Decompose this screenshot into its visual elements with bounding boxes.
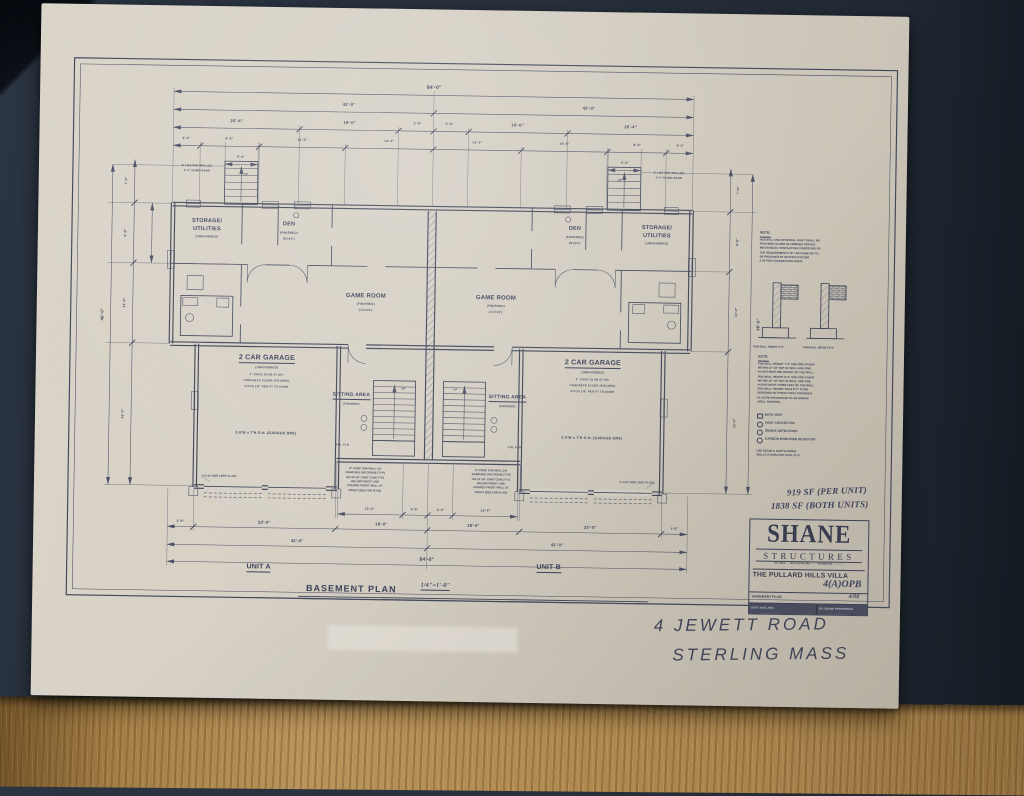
dim-label: 5'-8": [414, 122, 422, 125]
unit-b-label: UNIT B: [536, 564, 561, 573]
sf-both-units-handwriting: 1838 SF (BOTH UNITS): [771, 500, 869, 511]
dim-label: 4'-0": [437, 509, 445, 512]
dim-label: 5'-8": [446, 123, 454, 126]
room-label-storage-right-3: (UNFINISHED): [645, 242, 668, 245]
dim-label: 23'-0": [121, 409, 124, 419]
unit-left-linework: [164, 160, 433, 500]
job-number-handwriting: 4(A)OPB: [823, 579, 862, 591]
garage-note-left-1: 4" CONC SLAB AT GR.: [250, 373, 284, 376]
fdn-detail2-label: FDN WALL HEIGHT 8'-0": [803, 346, 834, 351]
dim-label: 13'-0": [735, 307, 738, 317]
date-cell: DATE: NOV, 2004: [749, 603, 817, 614]
dim-label: 13'-0": [365, 508, 375, 511]
room-label-gameroom-left: GAME ROOM: [346, 293, 386, 300]
plan-title: BASEMENT PLAN: [306, 584, 397, 594]
dim-label: 13'-0": [481, 510, 491, 513]
note1-title: NOTE:: [760, 231, 771, 238]
room-label-gameroom-right-3: (14'x12'): [489, 311, 503, 314]
dim-label: 20'-4": [230, 119, 243, 123]
up-label-right: UP: [618, 179, 622, 182]
unit-a-label: UNIT A: [246, 563, 270, 572]
brand-address: P.O. BOX ·· · BOYLSTON, MA ····· · PHONE…: [750, 561, 868, 566]
dim-label: 14'-2": [472, 141, 482, 144]
garage-note-left-2: CONCRETE FLOOR (PITCHED): [244, 379, 290, 383]
dim-label: 14'-0": [559, 143, 569, 146]
room-label-storage-left: STORAGE/: [192, 219, 222, 225]
garage-note-left-3: PITCH 1/8" PER FT TO DOOR: [245, 385, 289, 388]
legend-item-co-detector: CARBON MONOXIDE DETECTOR: [757, 437, 823, 445]
note2-title: NOTE:: [758, 355, 769, 362]
up-label-stair-right: UP: [453, 388, 457, 391]
fin-flr-left: FIN. FLR: [336, 444, 349, 447]
dim-label: 42'-0": [583, 107, 596, 111]
note2-text: FDN WALL HEIGHT 7'-0" USE ONE #4 BARWITH…: [757, 362, 860, 405]
dim-label: 42'-0": [551, 543, 564, 547]
dim-label: 16'-0": [511, 124, 524, 128]
room-label-garage-left-2: (UNFINISHED): [255, 366, 278, 369]
dim-label: 23'-0": [733, 418, 736, 428]
dim-label: 5'-4": [621, 162, 629, 165]
room-label-gameroom-left-2: (FINISHED): [357, 303, 375, 306]
dim-label: 1'-6": [670, 528, 678, 531]
brand-name: SHANE: [750, 519, 868, 550]
note1-text: NATURAL AND ARTIFICIAL LIGHT SHALL BEPRO…: [760, 238, 862, 265]
pier-note-left-1: 8' LNG PAD WALL(S): [182, 165, 212, 168]
room-label-den-left-2: (FINISHED): [280, 231, 298, 234]
wood-table-edge: [0, 696, 1024, 795]
dim-label: 9'-6": [225, 138, 233, 141]
dim-label: 9'-8": [736, 238, 739, 246]
dim-label: 22'-0": [584, 526, 597, 530]
garage-note-right-2: CONCRETE FLOOR (PITCHED): [570, 384, 616, 388]
room-label-garage-left: 2 CAR GARAGE: [239, 354, 295, 363]
hdr-note-left: 2-2x10 HDR (SEE PLAN): [201, 475, 236, 478]
dim-label: 4'-4": [182, 137, 190, 140]
room-label-storage-left-2: UTILITIES: [193, 227, 221, 233]
up-label-stair-left: UP: [401, 388, 405, 391]
dim-label: 18'-0": [375, 522, 388, 526]
titleblock-footer-row: DATE: NOV, 2004 BY: SHANE PROPERTIES: [749, 602, 867, 615]
dim-label: 5'-4": [237, 156, 245, 159]
dim-label: 9'-8": [124, 229, 127, 237]
dim-label: 84'-0": [427, 86, 442, 91]
co-detector-circle-icon: [757, 437, 763, 443]
room-label-garage-right-2: (UNFINISHED): [581, 371, 604, 374]
dim-label: 22'-0": [258, 521, 271, 525]
garage-note-right-1: 4" CONC SLAB AT GR.: [576, 378, 610, 381]
dim-label: 1'-6": [176, 520, 184, 523]
title-block: SHANE STRUCTURES P.O. BOX ·· · BOYLSTON,…: [748, 518, 869, 616]
dim-label: 42'-0": [291, 539, 304, 543]
room-label-den-right-3: (9'x10'): [569, 242, 581, 245]
smoke-detector-circle-icon: [757, 429, 763, 435]
dim-label: 14'-2": [384, 140, 394, 143]
room-label-storage-right-2: UTILITIES: [643, 234, 671, 240]
bath-vent-square-icon: [757, 413, 763, 419]
dim-label: 7'-0": [737, 186, 740, 194]
dim-label: 13'-0": [123, 298, 126, 308]
legend-label: CARBON MONOXIDE DETECTOR: [765, 437, 823, 442]
room-label-gameroom-right: GAME ROOM: [476, 295, 516, 302]
handwritten-city-state: STERLING MASS: [672, 644, 849, 666]
fdn-detail1-label: FDN WALL HEIGHT 7'-0": [753, 345, 784, 350]
fdn-wall-detail-drawings: [758, 283, 846, 339]
room-label-gameroom-left-3: (14'x12'): [359, 309, 373, 312]
room-label-sitting-left-2: (FINISHED): [343, 403, 360, 406]
room-label-sitting-right-2: (FINISHED): [499, 405, 516, 408]
room-label-den-right-2: (FINISHED): [566, 236, 584, 239]
fdn-note-right: 8" CONC FDN WALL (4')DOWN BELOW GRADE (T…: [471, 468, 510, 495]
sheet-number-handwriting: 4/08: [849, 594, 860, 600]
legend-label: BATH VENT: [765, 413, 783, 417]
legend-item-heat-convector: HEAT CONVECTOR: [757, 421, 795, 428]
room-label-den-left: DEN: [283, 222, 295, 228]
dim-label: 16'-0": [343, 121, 356, 125]
pier-note-right-2: 4'-0" DOWN BAND: [655, 178, 682, 181]
dim-label: 20'-4": [624, 125, 637, 129]
room-label-den-right: DEN: [569, 227, 581, 233]
desk-right-shade: [894, 0, 1024, 710]
dim-label: 14'-0": [297, 139, 307, 142]
room-label-storage-left-3: (UNFINISHED): [195, 235, 218, 238]
blueprint-paper: STORAGE/ UTILITIES (UNFINISHED) DEN (FIN…: [31, 3, 910, 709]
erased-smudge: [327, 625, 517, 653]
plan-scale: 1/4"=1'-0": [421, 583, 451, 591]
dim-label: 42'-0": [343, 103, 356, 107]
dim-label: 9'-6": [633, 144, 641, 147]
dim-label: 46'-0": [100, 308, 104, 321]
room-label-den-left-3: (9'x10'): [283, 238, 295, 241]
legend-label: HEAT CONVECTOR: [765, 421, 795, 425]
dim-label: 18'-0": [467, 524, 480, 528]
room-label-gameroom-right-2: (FINISHED): [487, 305, 505, 308]
legend-item-smoke-detector: SMOKE DETECTORS: [757, 429, 797, 436]
handwritten-street-address: 4 JEWETT ROAD: [654, 614, 829, 636]
dim-label: 46'-0": [756, 318, 760, 331]
legend-footer: USE DOUBLE JOISTS UNDERWALLS IF GREATER …: [756, 449, 800, 458]
up-label-left: UP: [244, 173, 248, 176]
pier-note-left-2: 4'-0" DOWN BAND: [184, 170, 211, 173]
garage-note-right-3: PITCH 1/8" PER FT TO DOOR: [570, 390, 614, 393]
room-label-garage-right: 2 CAR GARAGE: [565, 359, 621, 368]
dim-label: 4'-4": [676, 145, 684, 148]
sheet-name: BASEMENT PLAN: [752, 594, 781, 598]
fin-flr-right: FIN. FLR: [508, 446, 521, 449]
dim-label: 7'-0": [125, 177, 128, 185]
pier-note-right-1: 8' LNG PAD WALL(S): [654, 173, 684, 176]
room-label-storage-right: STORAGE/: [642, 226, 672, 232]
legend-item-bath-vent: BATH VENT: [757, 413, 783, 419]
legend-label: SMOKE DETECTORS: [765, 429, 797, 434]
dim-label: 4'-0": [411, 508, 419, 511]
heat-convector-circle-icon: [757, 421, 763, 427]
dimension-lines-top: [173, 91, 694, 171]
dim-label: 84'-0": [419, 558, 434, 563]
room-label-sitting-right: SITTING AREA: [489, 395, 527, 402]
fdn-note-left: 8" CONC FDN WALL (4')DOWN BELOW GRADE (T…: [345, 466, 384, 493]
hdr-note-right: 2-2x10 HDR (SEE PLAN): [619, 482, 654, 485]
room-label-sitting-left: SITTING AREA: [333, 393, 371, 400]
